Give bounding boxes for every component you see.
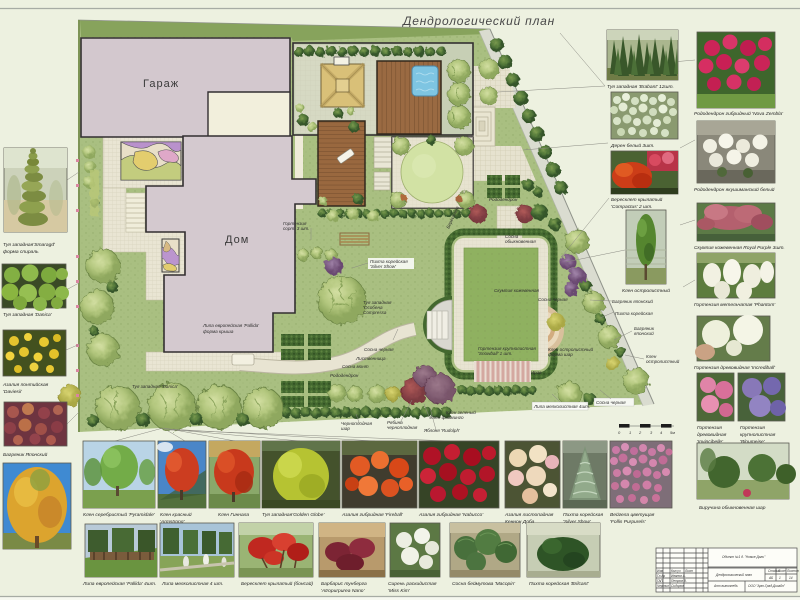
svg-text:Гортензия метельчатая 'Phantom: Гортензия метельчатая 'Phantom' — [694, 302, 776, 308]
svg-text:Чертил: Чертил — [657, 584, 669, 588]
svg-text:Клен серебристый 'Pyramidale': Клен серебристый 'Pyramidale' — [83, 511, 156, 518]
svg-text:Багряник японский: Багряник японский — [612, 298, 653, 304]
svg-text:Дом: Дом — [225, 234, 249, 246]
svg-text:Азалия понтийская: Азалия понтийская — [2, 381, 49, 388]
svg-text:черноплодная: черноплодная — [387, 425, 418, 430]
svg-text:1: 1 — [779, 576, 781, 580]
svg-text:Пихта корейская: Пихта корейская — [563, 511, 603, 518]
svg-text:Ирга: Ирга — [531, 370, 542, 375]
svg-text:Пихта корейская: Пихта корейская — [615, 310, 653, 316]
svg-text:Липа мелколистная 4 шт.: Липа мелколистная 4 шт. — [161, 581, 223, 587]
svg-text:Листов: Листов — [786, 569, 799, 573]
svg-text:Сосна беймутова 'Macopin': Сосна беймутова 'Macopin' — [452, 580, 516, 587]
svg-text:сорт. 3 шт.: сорт. 3 шт. — [283, 226, 309, 231]
svg-text:древовидная: древовидная — [697, 432, 727, 438]
svg-text:Гортензия древовидная 'Incredi: Гортензия древовидная 'Incrediball' — [694, 365, 776, 371]
svg-text:Туя западная'Golden Globe': Туя западная'Golden Globe' — [262, 512, 325, 518]
svg-text:Лист: Лист — [684, 569, 694, 573]
svg-text:Пихта корейская 'Brilcant': Пихта корейская 'Brilcant' — [529, 580, 590, 587]
svg-text:АБ: АБ — [768, 576, 773, 580]
svg-text:Клен зеленый: Клен зеленый — [446, 409, 476, 415]
svg-text:Азалия гибридная 'Nabucco': Азалия гибридная 'Nabucco' — [418, 512, 484, 518]
svg-text:Сосна монт: Сосна монт — [342, 364, 369, 369]
svg-text:'Follis Purpurels': 'Follis Purpurels' — [610, 519, 647, 525]
svg-text:Петров В.: Петров В. — [671, 579, 687, 583]
svg-text:Бересклет крылатый (бонсай): Бересклет крылатый (бонсай) — [241, 580, 313, 587]
svg-text:Объект №1 д. "Новые Дали": Объект №1 д. "Новые Дали" — [722, 555, 766, 559]
svg-text:14: 14 — [789, 576, 793, 580]
svg-text:Туя западная 'Danica': Туя западная 'Danica' — [3, 312, 53, 318]
svg-text:Лиственница: Лиственница — [355, 356, 386, 361]
svg-text:Сосна черная: Сосна черная — [538, 297, 568, 302]
svg-text:крупнолистная: крупнолистная — [740, 433, 776, 438]
svg-text:'Snowball' 1 шт.: 'Snowball' 1 шт. — [478, 351, 512, 356]
svg-text:Кол.уч: Кол.уч — [671, 569, 681, 573]
svg-text:Барбарис тунберга: Барбарис тунберга — [321, 581, 367, 587]
svg-text:Сирень раскидистая: Сирень раскидистая — [388, 581, 437, 587]
svg-text:Гортензия: Гортензия — [740, 425, 765, 431]
svg-text:Сосна черная: Сосна черная — [596, 400, 626, 405]
svg-text:Клен остролистный: Клен остролистный — [622, 287, 670, 294]
svg-text:обыкновенная: обыкновенная — [505, 239, 536, 244]
svg-text:Вейгела цветущая: Вейгела цветущая — [610, 511, 655, 518]
svg-text:'Compactus' 2 шт.: 'Compactus' 2 шт. — [611, 204, 652, 210]
svg-text:Лист: Лист — [777, 569, 787, 573]
svg-text:Compressa: Compressa — [363, 310, 387, 315]
svg-text:Сидоров: Сидоров — [671, 584, 684, 588]
svg-text:Скумпия кожевенная: Скумпия кожевенная — [494, 288, 540, 293]
svg-text:остролистный: остролистный — [646, 358, 680, 364]
svg-text:Дендрологический план: Дендрологический план — [401, 14, 555, 28]
svg-text:Клен красный: Клен красный — [160, 511, 192, 518]
svg-text:шар: шар — [341, 426, 350, 431]
svg-text:Гортензия: Гортензия — [697, 425, 722, 431]
svg-text:Азалия гибридная 'Fireball': Азалия гибридная 'Fireball' — [341, 512, 404, 518]
svg-text:Туя западная 'Danica': Туя западная 'Danica' — [132, 384, 178, 389]
svg-text:Липа европейская 'Pallida': Липа европейская 'Pallida' — [202, 322, 259, 328]
svg-text:Гл.Ар: Гл.Ар — [657, 574, 665, 578]
svg-text:Яблоня 'Rudolph': Яблоня 'Rudolph' — [423, 428, 460, 433]
svg-text:Туя западная'Smaragd': Туя западная'Smaragd' — [3, 242, 56, 248]
svg-text:Сосна черная: Сосна черная — [364, 347, 394, 352]
svg-text:Дендрологический план: Дендрологический план — [715, 573, 752, 577]
svg-text:Скумпия кожевенная Royal Purpl: Скумпия кожевенная Royal Purple 3шт. — [694, 245, 785, 251]
svg-text:форма спираль: форма спираль — [3, 249, 39, 255]
svg-text:5м: 5м — [670, 430, 675, 435]
svg-text:Клен Гиннала: Клен Гиннала — [218, 512, 249, 518]
svg-text:Изм: Изм — [657, 569, 664, 573]
svg-text:'Silver Show': 'Silver Show' — [370, 264, 396, 269]
svg-text:Багряник Японский: Багряник Японский — [3, 451, 48, 458]
svg-text:Клен фламинго: Клен фламинго — [430, 415, 464, 420]
svg-text:Гараж: Гараж — [143, 78, 179, 90]
svg-text:Липа мелколистная 4шт.: Липа мелколистная 4шт. — [533, 404, 590, 409]
svg-text:1: 1 — [629, 430, 631, 435]
svg-text:ГАП: ГАП — [657, 579, 664, 583]
svg-text:Биручина обыкновенная шар: Биручина обыкновенная шар — [699, 505, 766, 511]
svg-text:Липа европейская 'Pallida' 4шт: Липа европейская 'Pallida' 4шт. — [82, 580, 156, 587]
svg-text:Иванов А.: Иванов А. — [671, 574, 686, 578]
svg-text:Бересклет крылатый: Бересклет крылатый — [611, 196, 663, 203]
svg-text:Туя западная 'Brabant' 12шт.: Туя западная 'Brabant' 12шт. — [607, 84, 674, 90]
svg-text:форма шар: форма шар — [548, 352, 573, 357]
svg-text:Рододендрон гибридный 'Nova Ze: Рододендрон гибридный 'Nova Zembla' — [694, 110, 784, 117]
svg-text:Рододендрон якушиманский белый: Рододендрон якушиманский белый — [694, 186, 775, 193]
svg-text:форма крыша: форма крыша — [203, 329, 234, 334]
svg-text:Ант выполнебъ: Ант выполнебъ — [713, 584, 738, 588]
svg-text:Дерен белый 3шт.: Дерен белый 3шт. — [610, 142, 655, 149]
svg-text:Азалия листопадная: Азалия листопадная — [504, 512, 554, 518]
svg-text:ООО "Арт-Град-Дизайн": ООО "Арт-Град-Дизайн" — [748, 584, 786, 588]
svg-text:Рододендрон: Рододендрон — [330, 373, 359, 378]
svg-text:японский: японский — [633, 330, 654, 336]
svg-text:'Daviesii': 'Daviesii' — [3, 389, 23, 395]
svg-text:'Atropurpurea Nano': 'Atropurpurea Nano' — [321, 588, 366, 594]
svg-text:'Miss Kim': 'Miss Kim' — [388, 588, 411, 594]
svg-text:Рододендрон: Рододендрон — [489, 197, 518, 202]
